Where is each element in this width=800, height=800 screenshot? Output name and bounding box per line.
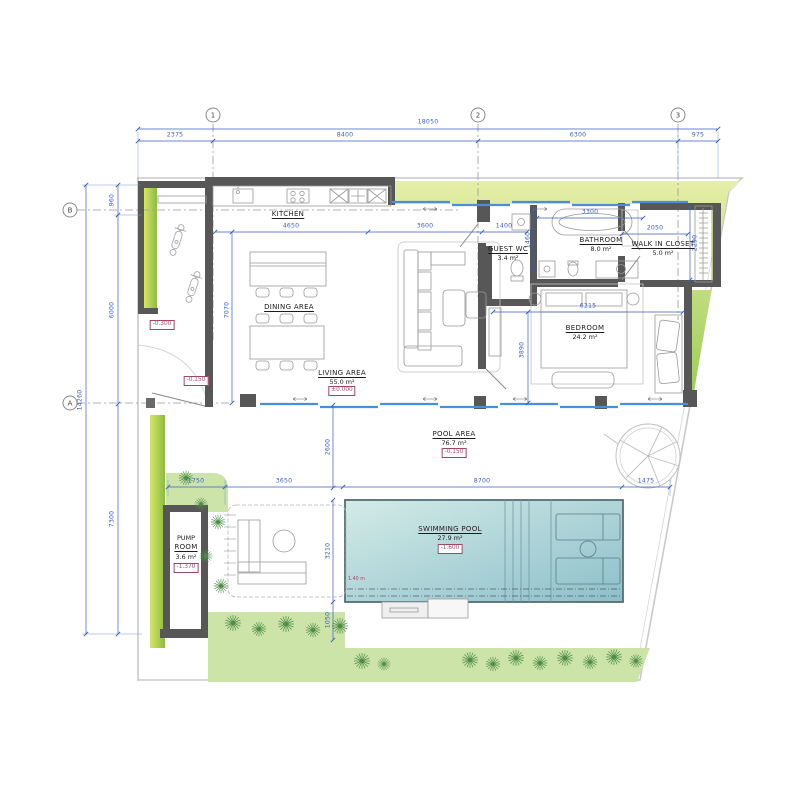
dim-pool-offset: 2600 (325, 439, 332, 456)
dim-living-width: 3600 (417, 223, 434, 230)
grid-bubble-A: A (63, 396, 78, 411)
room-label-pump-1: PUMP (177, 534, 195, 542)
level-living: ±0.000 (328, 386, 355, 396)
dim-pool-height: 3210 (325, 543, 332, 560)
dim-pool-east: 1475 (638, 478, 655, 485)
room-area-guest-wc: 3.4 m² (498, 254, 519, 262)
grid-bubble-2: 2 (471, 108, 486, 123)
dim-seg-8400: 8400 (337, 132, 354, 139)
room-label-dining: DINING AREA (264, 303, 314, 311)
dim-total-width: 18050 (418, 119, 439, 126)
room-label-pool: SWIMMING POOL (418, 525, 482, 533)
level-carport: -0.300 (150, 320, 175, 330)
grid-bubble-3: 3 (671, 108, 686, 123)
room-label-pool-area: POOL AREA (433, 430, 476, 438)
level-entry: -0.150 (184, 376, 209, 386)
dim-pool-south: 1050 (325, 612, 332, 629)
dim-deck-1750: 1750 (188, 478, 205, 485)
pool-equipment (382, 599, 468, 618)
dim-bedroom-height: 3890 (519, 342, 526, 359)
dim-total-height: 14260 (77, 390, 84, 411)
floor-plan-canvas: 1 2 3 B A 18050 2375 8400 6300 975 14260… (0, 0, 800, 800)
dim-seg-960: 960 (109, 194, 116, 206)
pool-depth-label: 1.40 m (348, 577, 365, 582)
room-area-pool: 27.9 m² (437, 534, 462, 542)
dim-seg-7300: 7300 (109, 511, 116, 528)
room-area-pool-area: 76.7 m² (441, 439, 466, 447)
dim-seg-6300: 6300 (570, 132, 587, 139)
grid-bubble-1: 1 (206, 108, 221, 123)
dim-bedroom-width: 6215 (580, 303, 597, 310)
dim-closet-width: 2050 (647, 225, 664, 232)
room-label-guest-wc: GUEST WC (488, 245, 528, 253)
dim-hall-width: 1400 (496, 223, 513, 230)
dim-kitchen-width: 4650 (283, 223, 300, 230)
level-pool-area: -0.150 (442, 448, 467, 458)
room-area-bathroom: 8.0 m² (591, 245, 612, 253)
level-pool: -1.600 (438, 544, 463, 554)
dim-bathroom-width: 3300 (582, 209, 599, 216)
dim-seg-2375: 2375 (167, 132, 184, 139)
room-area-closet: 5.0 m² (653, 249, 674, 257)
dim-interior-height: 7070 (224, 302, 231, 319)
level-pump: -1.370 (174, 563, 199, 573)
room-label-kitchen: KITCHEN (272, 210, 304, 218)
room-label-pump-2: ROOM (174, 543, 197, 551)
dim-pool-width: 8700 (474, 478, 491, 485)
room-label-bedroom: BEDROOM (566, 324, 605, 332)
room-label-living: LIVING AREA (318, 369, 366, 377)
swimming-pool (345, 500, 623, 602)
room-label-closet: WALK IN CLOSET (632, 240, 695, 248)
dim-seg-975: 975 (692, 132, 704, 139)
grid-bubble-B: B (63, 203, 78, 218)
dim-deck-3650: 3650 (276, 478, 293, 485)
room-area-pump: 3.6 m² (176, 553, 197, 561)
room-area-living: 55.0 m² (329, 378, 354, 386)
dim-seg-6000: 6000 (109, 302, 116, 319)
room-label-bathroom: BATHROOM (580, 236, 623, 244)
room-area-bedroom: 24.2 m² (572, 333, 597, 341)
